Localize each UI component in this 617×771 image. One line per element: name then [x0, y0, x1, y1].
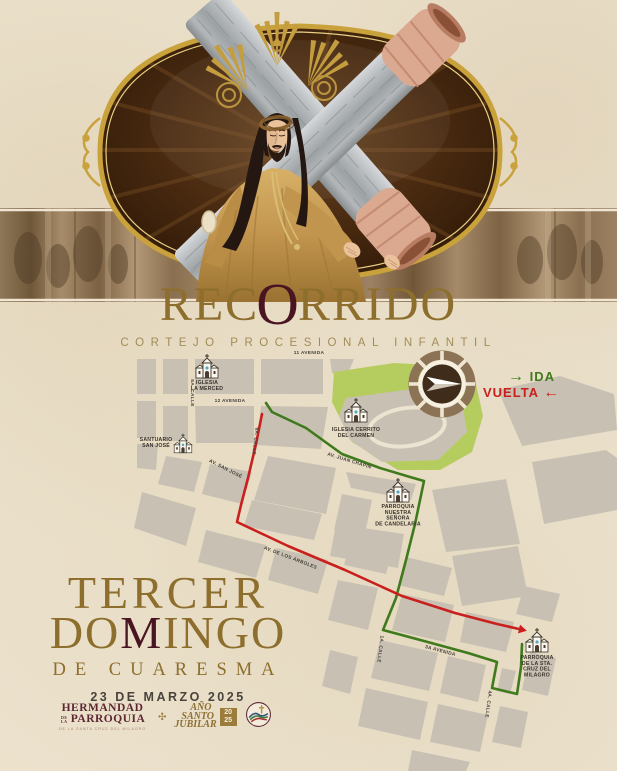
city-block: [452, 546, 528, 606]
city-block: [134, 492, 196, 546]
page-title: RECORRIDO: [0, 281, 617, 329]
street-label: 5A. CALLE: [189, 379, 195, 407]
city-block: [408, 750, 470, 771]
jubilar-year-box: 20 25: [220, 708, 237, 726]
city-block: [137, 401, 156, 438]
street-label: 4A. CALLE: [483, 690, 492, 719]
church-label: DEL CARMEN: [338, 433, 375, 439]
city-block: [322, 650, 358, 694]
hermandad-dela: DE LA: [60, 716, 69, 724]
city-block: [158, 456, 202, 492]
vuelta-arrow-icon: ←: [543, 384, 560, 401]
footer-logos: HERMANDAD DE LA PARROQUIA DE LA SANTA CR…: [55, 698, 272, 736]
street-label: 12 AVENIDA: [215, 398, 246, 404]
jubilar-wordmark: AÑOSANTOJUBILAR: [174, 704, 216, 730]
city-block: [430, 704, 488, 752]
event-line2: DOMINGO: [22, 613, 314, 653]
route-vuelta-arrowhead: [518, 625, 527, 634]
church-icon: [526, 628, 548, 652]
city-block: [532, 450, 617, 524]
church-label: SAN JOSÉ: [142, 441, 170, 449]
street-label: 11 AVENIDA: [294, 350, 325, 356]
city-block: [492, 706, 528, 748]
church-label: DE CANDELARIA: [375, 521, 421, 527]
jubilee-seal-icon: [245, 701, 272, 733]
page-subtitle: CORTEJO PROCESIONAL INFANTIL: [0, 337, 617, 349]
legend-ida-label: IDA: [530, 369, 555, 384]
city-block: [163, 359, 188, 394]
event-title-block: TERCER DOMINGO DE CUARESMA 23 DE MARZO 2…: [22, 572, 314, 704]
city-block: [137, 359, 156, 394]
city-block: [440, 656, 486, 702]
church-icon: [196, 354, 218, 378]
legend-vuelta: VUELTA ←: [483, 384, 560, 402]
church-label: LA MERCED: [191, 386, 223, 392]
city-block: [328, 580, 378, 630]
ida-arrow-icon: →: [508, 368, 525, 385]
jubilar-logo: AÑOSANTOJUBILAR 20 25: [174, 704, 236, 730]
event-line3: DE CUARESMA: [22, 660, 314, 681]
city-block: [257, 406, 328, 449]
legend-vuelta-label: VUELTA: [483, 385, 539, 400]
rosette-ornament-icon: ✣: [158, 712, 166, 723]
city-block: [163, 406, 188, 441]
city-block: [432, 479, 520, 552]
city-block: [516, 586, 560, 622]
city-block: [358, 688, 428, 740]
jubilar-year-bottom: 25: [220, 717, 237, 725]
church-label: MILAGRO: [524, 672, 550, 678]
city-block: [261, 359, 323, 394]
hermandad-line3: DE LA SANTA CRUZ DEL MILAGRO: [55, 728, 150, 732]
hermandad-logo: HERMANDAD DE LA PARROQUIA DE LA SANTA CR…: [55, 703, 150, 732]
city-block: [460, 612, 514, 652]
city-block: [195, 406, 254, 443]
compass-icon: [408, 350, 476, 418]
jubilar-year-top: 20: [220, 709, 237, 717]
hermandad-line2: PARROQUIA: [71, 714, 146, 726]
